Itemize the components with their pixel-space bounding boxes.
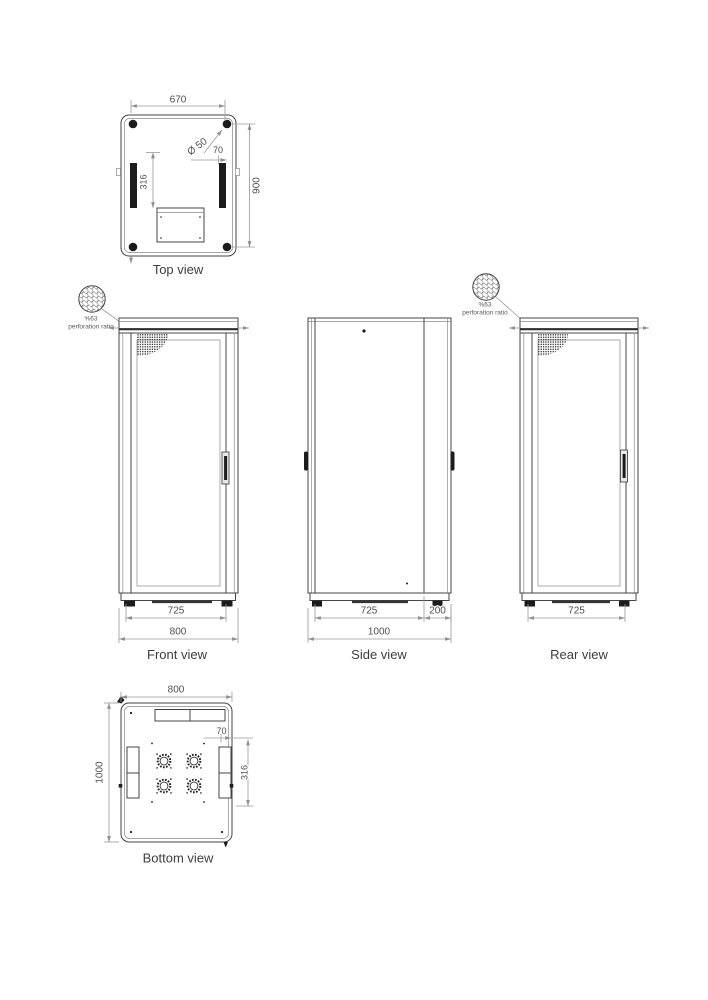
bottom-view: 800 1000 70 316 Bottom view xyxy=(95,685,254,866)
dim-value: 800 xyxy=(170,627,187,638)
dim-value: 900 xyxy=(252,177,263,194)
top-cap xyxy=(520,318,638,333)
dimension-bottom-slot: 316 xyxy=(236,740,254,807)
roof-dot xyxy=(362,329,365,332)
perforated-circle-icon xyxy=(79,286,105,312)
side-view: 725 200 1000 Side view xyxy=(304,318,455,662)
plinth xyxy=(522,593,636,601)
fan-hub xyxy=(190,757,198,765)
screw-dot xyxy=(199,216,201,218)
dim-value: 670 xyxy=(170,95,187,106)
screw-dot xyxy=(200,778,202,780)
perforation-ratio-value: %63 xyxy=(84,316,97,323)
dim-value: 725 xyxy=(361,606,378,617)
panel-dot xyxy=(406,583,408,585)
screw-dot xyxy=(151,743,153,745)
screw-dot xyxy=(170,753,172,755)
screw-dot xyxy=(170,792,172,794)
screw-dot xyxy=(186,767,188,769)
roof-opening xyxy=(157,208,204,242)
view-label-rear: Rear view xyxy=(550,647,608,662)
fan-hub xyxy=(160,757,168,765)
dim-value: 725 xyxy=(168,606,185,617)
door-handle xyxy=(451,452,455,471)
vent-opening xyxy=(155,710,225,722)
screw-dot xyxy=(156,767,158,769)
dim-value: 725 xyxy=(568,606,585,617)
view-label-side: Side view xyxy=(351,647,407,662)
corner-hole-icon xyxy=(223,243,232,252)
foot xyxy=(222,601,233,607)
screw-dot xyxy=(203,743,205,745)
dimension-front-inner: 725 xyxy=(126,604,226,622)
screw-dot xyxy=(186,753,188,755)
screw-dot xyxy=(200,792,202,794)
cabinet-body xyxy=(308,318,451,593)
dimension-bottom-width: 800 xyxy=(121,685,232,703)
door-handle xyxy=(621,450,628,482)
screw-dot xyxy=(156,792,158,794)
handle-grip xyxy=(623,454,626,478)
dim-value: 316 xyxy=(240,765,250,780)
cable-slot xyxy=(130,163,137,208)
rear-view: 725 Rear view xyxy=(509,318,649,662)
screw-dot xyxy=(203,801,205,803)
fan-hub xyxy=(190,782,198,790)
cable-slot xyxy=(219,163,226,208)
door-handle xyxy=(304,452,308,471)
dim-value: 316 xyxy=(139,174,149,189)
view-label-front: Front view xyxy=(147,647,208,662)
screw-dot xyxy=(160,216,162,218)
corner-hole-icon xyxy=(223,120,232,129)
door-handle xyxy=(222,452,229,484)
screw-dot xyxy=(200,767,202,769)
screw-dot xyxy=(186,778,188,780)
dim-value: 1000 xyxy=(95,761,106,784)
corner-hole-icon xyxy=(129,243,138,252)
top-view: 670 Ø 50 70 316 900 Top view xyxy=(117,95,263,278)
handle-grip xyxy=(224,456,227,480)
screw-dot xyxy=(160,237,162,239)
view-label-bottom: Bottom view xyxy=(143,851,214,866)
dim-value: 70 xyxy=(213,145,223,155)
foot xyxy=(619,601,630,607)
perforation-ratio-value: %63 xyxy=(478,302,491,309)
dim-value: 800 xyxy=(168,685,185,696)
screw-dot xyxy=(200,753,202,755)
screw-dot xyxy=(170,767,172,769)
corner-hole-icon xyxy=(129,120,138,129)
cable-entry-right xyxy=(219,747,231,798)
corner-dot xyxy=(130,831,132,833)
foot xyxy=(312,601,322,607)
screw-dot xyxy=(156,778,158,780)
screw-dot xyxy=(156,753,158,755)
plinth xyxy=(121,593,236,601)
foot xyxy=(525,601,536,607)
edge-hinge-mark xyxy=(230,784,234,788)
ground-tick xyxy=(224,842,229,848)
cable-entry-left xyxy=(127,747,139,798)
view-label-top: Top view xyxy=(153,262,204,277)
perforation-ratio-caption: perforation ratio xyxy=(462,310,508,317)
front-view: 725 800 Front view xyxy=(108,318,249,662)
screw-dot xyxy=(199,237,201,239)
top-cap xyxy=(119,318,238,333)
screw-dot xyxy=(186,792,188,794)
side-notch xyxy=(236,169,240,176)
dim-value: 70 xyxy=(216,726,226,736)
screw-dot xyxy=(151,801,153,803)
corner-dot xyxy=(130,712,132,714)
plinth xyxy=(310,593,449,601)
dimension-bottom-depth: 1000 xyxy=(95,703,120,842)
screw-dot xyxy=(170,778,172,780)
drawing-canvas: 670 Ø 50 70 316 900 Top view xyxy=(0,0,708,1000)
dim-value: 1000 xyxy=(368,627,391,638)
edge-hinge-mark xyxy=(119,784,123,788)
technical-drawing: 670 Ø 50 70 316 900 Top view xyxy=(0,0,708,1000)
fan-hub xyxy=(160,782,168,790)
dimension-rear-inner: 725 xyxy=(528,604,625,622)
dim-value: 200 xyxy=(429,606,446,617)
side-notch xyxy=(117,169,121,176)
perforated-circle-icon xyxy=(473,274,499,300)
dimension-depth: 900 xyxy=(232,124,263,247)
corner-dot xyxy=(221,831,223,833)
perforation-ratio-caption: perforation ratio xyxy=(68,324,114,331)
